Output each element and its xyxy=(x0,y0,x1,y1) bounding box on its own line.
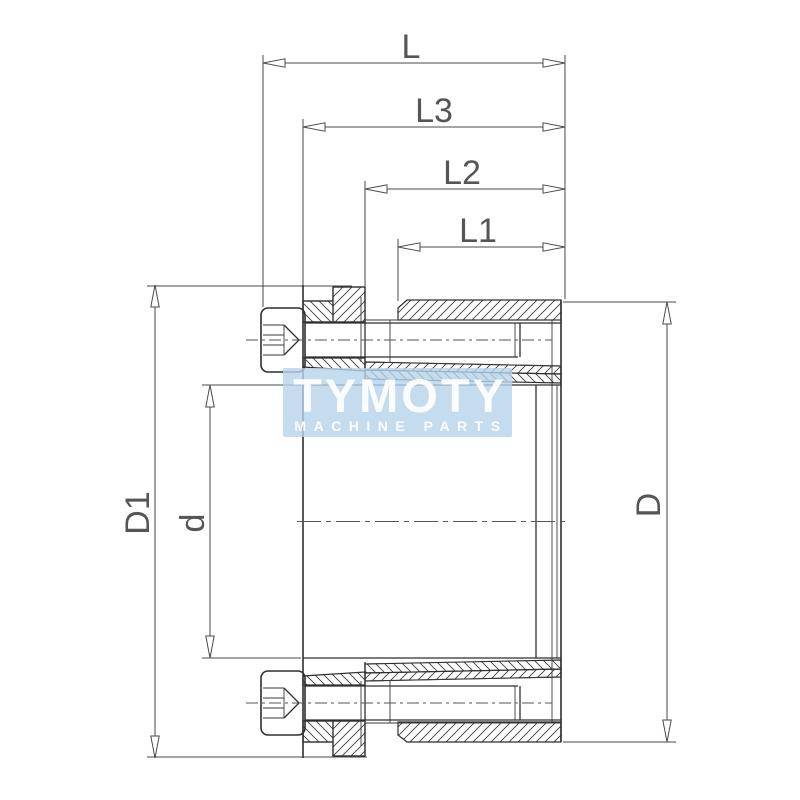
watermark: TYMOTY MACHINE PARTS xyxy=(283,368,512,437)
dim-label-d: d xyxy=(174,514,212,533)
dim-label-l3: L3 xyxy=(415,92,453,130)
dim-label-l2: L2 xyxy=(443,154,481,192)
technical-drawing: L L3 L2 L1 D1 d xyxy=(0,0,800,800)
dim-label-d-outer: D xyxy=(630,493,668,518)
dimension-d-outer: D xyxy=(563,302,676,742)
dimension-l: L xyxy=(263,28,565,307)
watermark-title: TYMOTY xyxy=(293,369,507,422)
dimension-l1: L1 xyxy=(398,212,565,301)
dim-label-l: L xyxy=(402,28,421,66)
dim-label-d1: D1 xyxy=(119,491,157,534)
watermark-subtitle: MACHINE PARTS xyxy=(294,418,507,434)
dimension-d: d xyxy=(174,385,301,658)
dim-label-l1: L1 xyxy=(459,212,497,250)
